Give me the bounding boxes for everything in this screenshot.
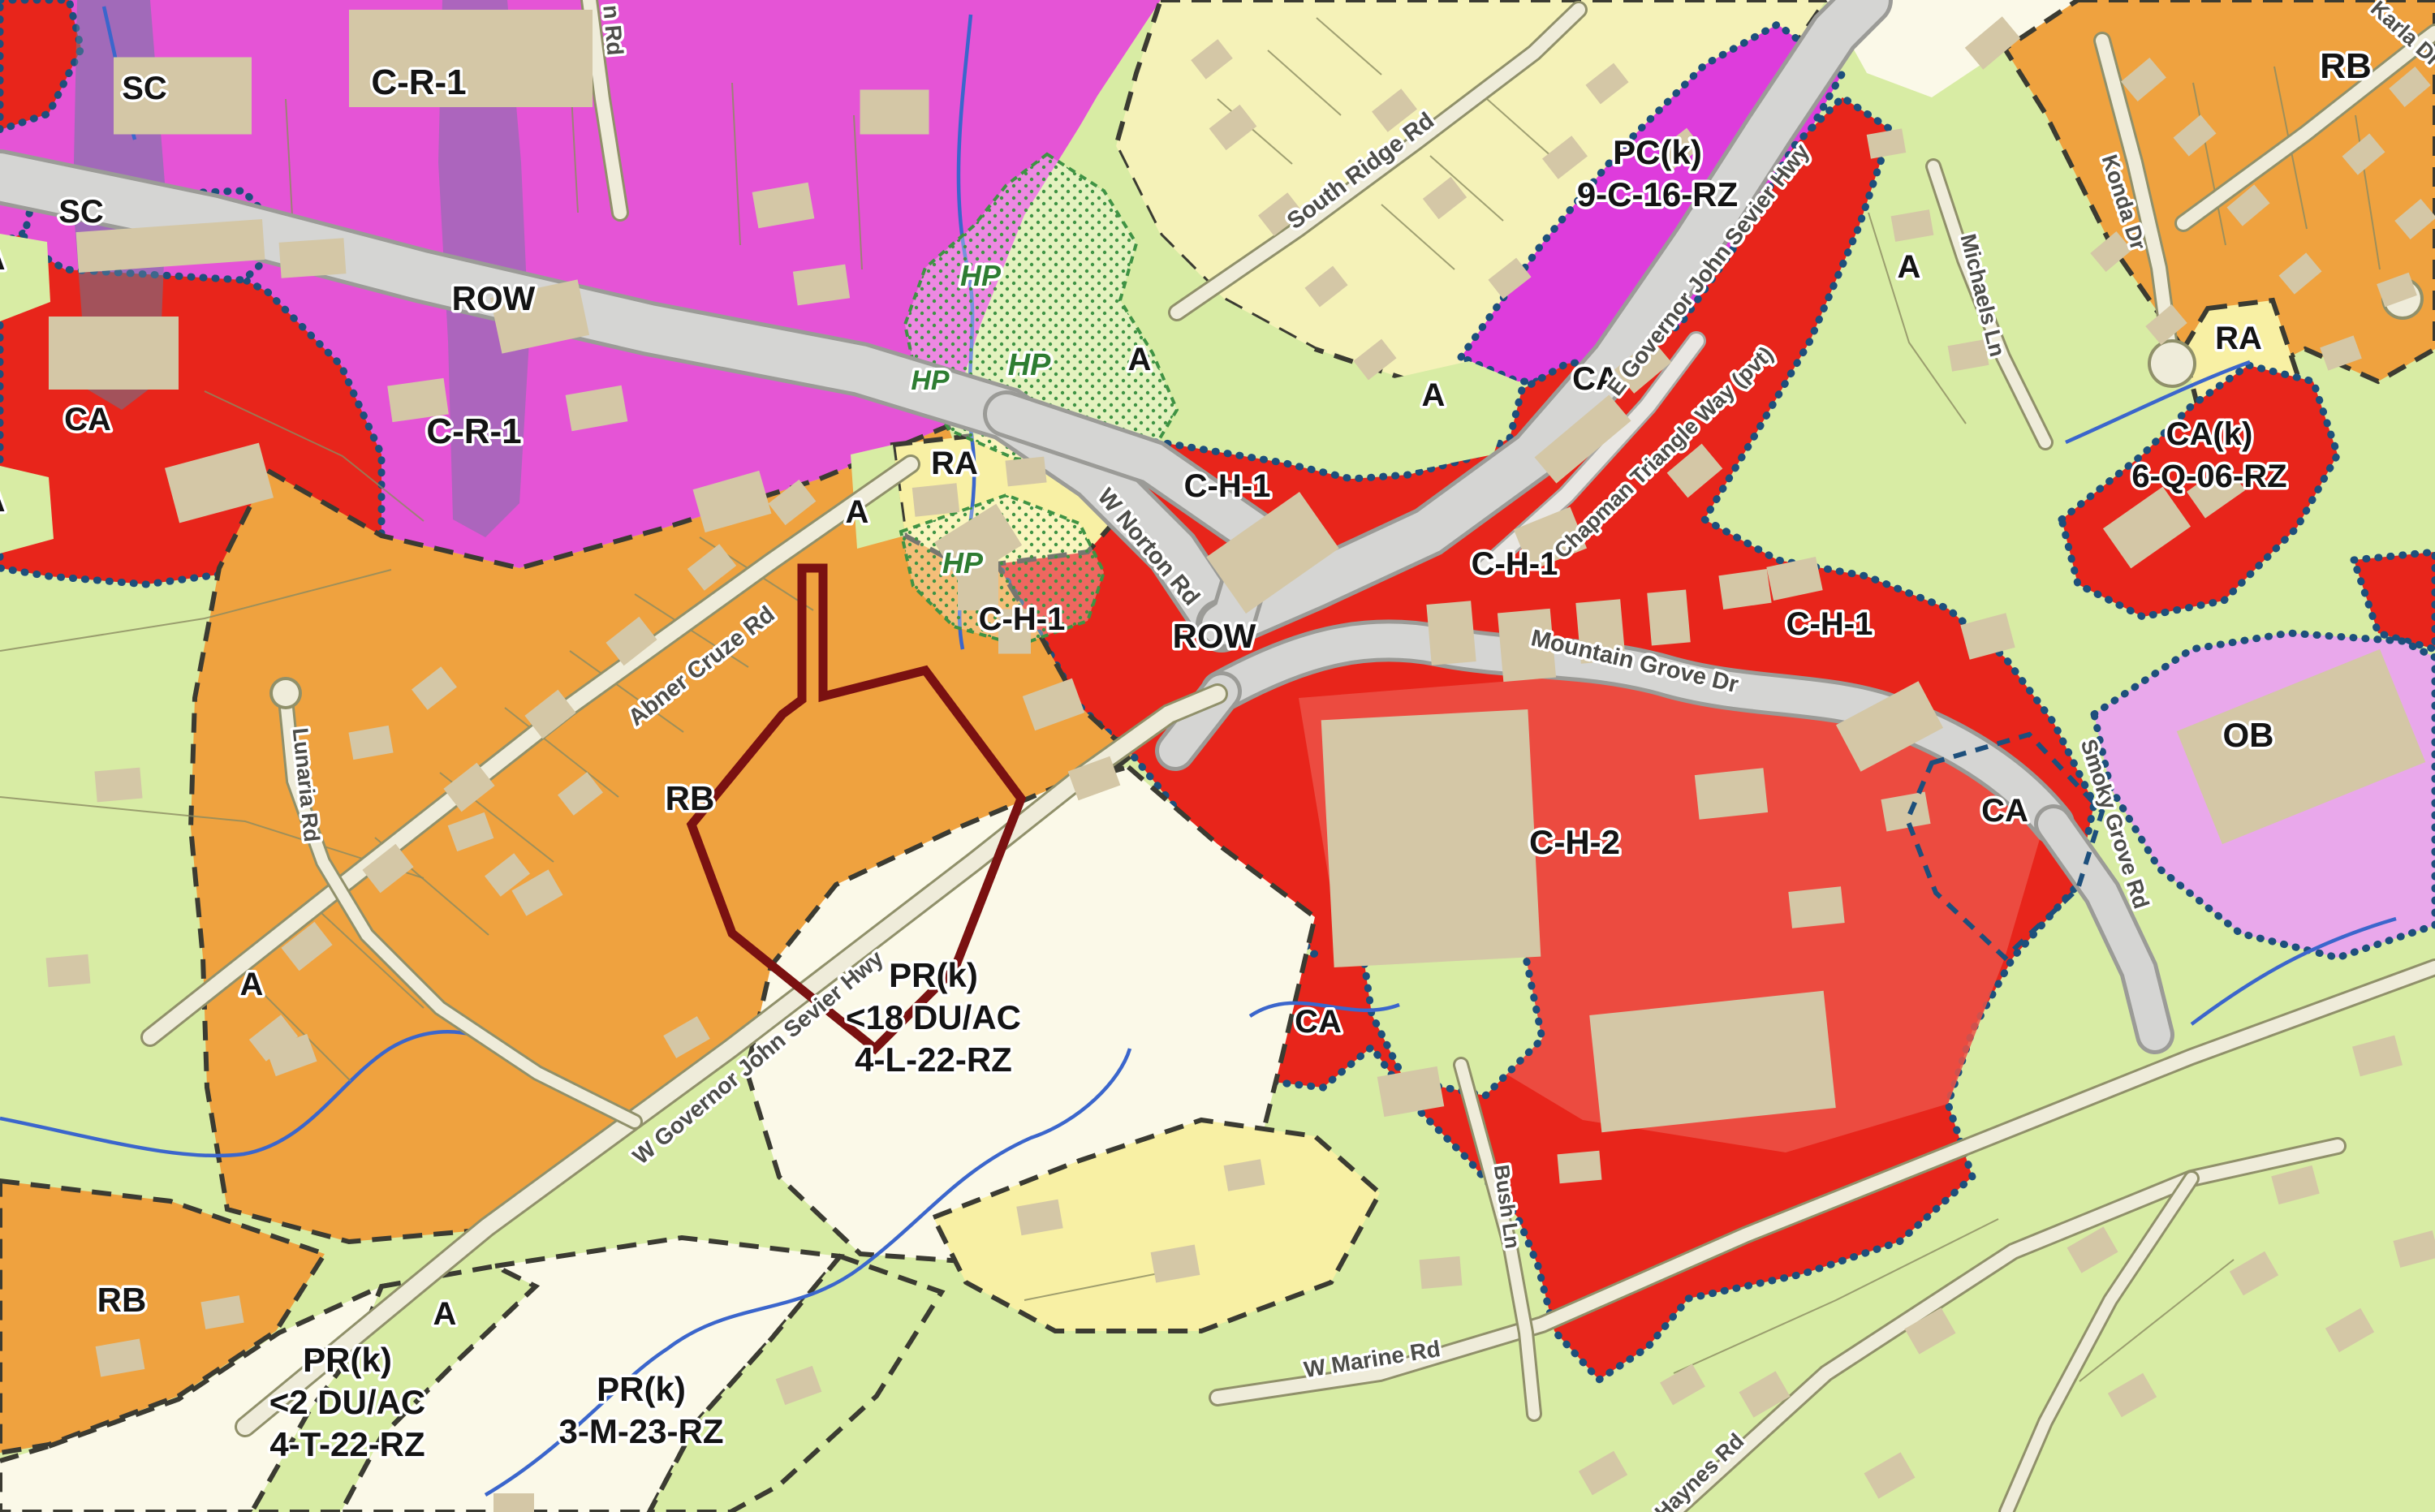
zone-label: OB [2223, 716, 2274, 754]
building-footprint [493, 1493, 534, 1512]
zone-label: CA(k) [2166, 416, 2253, 452]
zone-label: HP [960, 259, 1002, 292]
zone-label: A [1128, 342, 1152, 377]
zone-label: HP [1008, 348, 1051, 382]
zone-label: 4-L-22-RZ [855, 1040, 1012, 1079]
building-footprint [1420, 1256, 1463, 1289]
zone-label: 6-Q-06-RZ [2131, 459, 2286, 494]
building-footprint [1718, 569, 1771, 610]
zone-label: CA [1295, 1004, 1342, 1040]
zone-label: RB [97, 1281, 147, 1319]
zone-label: A [846, 494, 869, 530]
zone-label: A [0, 483, 5, 519]
zone-label: SC [122, 71, 167, 106]
zone-label: PC(k) [1613, 133, 1702, 171]
zone-label: RA [2215, 321, 2262, 356]
zone-label: HP [911, 365, 950, 396]
zone-A-sliver-2[interactable] [0, 466, 54, 554]
zone-label: 3-M-23-RZ [558, 1412, 723, 1450]
zone-label: 9-C-16-RZ [1577, 175, 1738, 213]
zone-label: C-H-1 [1786, 606, 1873, 642]
zone-label: PR(k) [597, 1370, 686, 1408]
zone-label: ROW [452, 279, 536, 317]
zone-label: C-R-1 [426, 411, 521, 451]
building-footprint [1321, 709, 1541, 967]
building-footprint [94, 768, 142, 803]
zone-label: A [1898, 249, 1921, 285]
building-footprint [46, 954, 91, 987]
building-footprint [1426, 601, 1476, 666]
zone-label: A [240, 967, 264, 1002]
building-footprint [912, 483, 959, 517]
zone-label: PR(k) [889, 956, 978, 994]
road-label: n Rd [598, 4, 627, 57]
building-footprint [1695, 768, 1768, 820]
zoning-map-svg[interactable]: SCC-R-1SCACAAC-R-1ROWAAARBRAPC(k)9-C-16-… [0, 0, 2435, 1512]
culdesac [273, 680, 299, 706]
building-footprint [1788, 886, 1844, 928]
zone-label: C-H-1 [1184, 468, 1271, 504]
zone-label: PR(k) [303, 1341, 392, 1379]
zone-label: A [0, 241, 5, 277]
building-footprint [1558, 1151, 1602, 1183]
culdesac [2151, 342, 2193, 385]
building-footprint [49, 317, 179, 390]
zone-label: 4-T-22-RZ [269, 1425, 425, 1463]
building-footprint [860, 90, 929, 135]
building-footprint [1647, 590, 1690, 646]
zone-label: A [1422, 377, 1446, 413]
zone-label: RB [2320, 46, 2372, 86]
zone-label: HP [942, 546, 984, 579]
zone-label: SC [58, 194, 104, 230]
building-footprint [793, 265, 850, 306]
zone-label: A [433, 1296, 457, 1332]
zone-label: CA [1981, 793, 2028, 829]
zone-label: <2 DU/AC [269, 1383, 426, 1421]
zone-label: RA [931, 446, 978, 481]
zone-label: ROW [1173, 617, 1256, 655]
building-footprint [279, 238, 347, 278]
zone-label: CA [64, 402, 111, 437]
zone-label: C-R-1 [371, 62, 466, 102]
zone-label: C-H-2 [1529, 823, 1620, 861]
building-footprint [1005, 457, 1046, 487]
zone-label: C-H-1 [1472, 546, 1558, 582]
map-container: SCC-R-1SCACAAC-R-1ROWAAARBRAPC(k)9-C-16-… [0, 0, 2435, 1512]
zone-label: RB [666, 779, 715, 817]
zone-label: C-H-1 [979, 601, 1066, 637]
building-footprint [1589, 991, 1836, 1133]
zone-label: <18 DU/AC [846, 998, 1021, 1036]
